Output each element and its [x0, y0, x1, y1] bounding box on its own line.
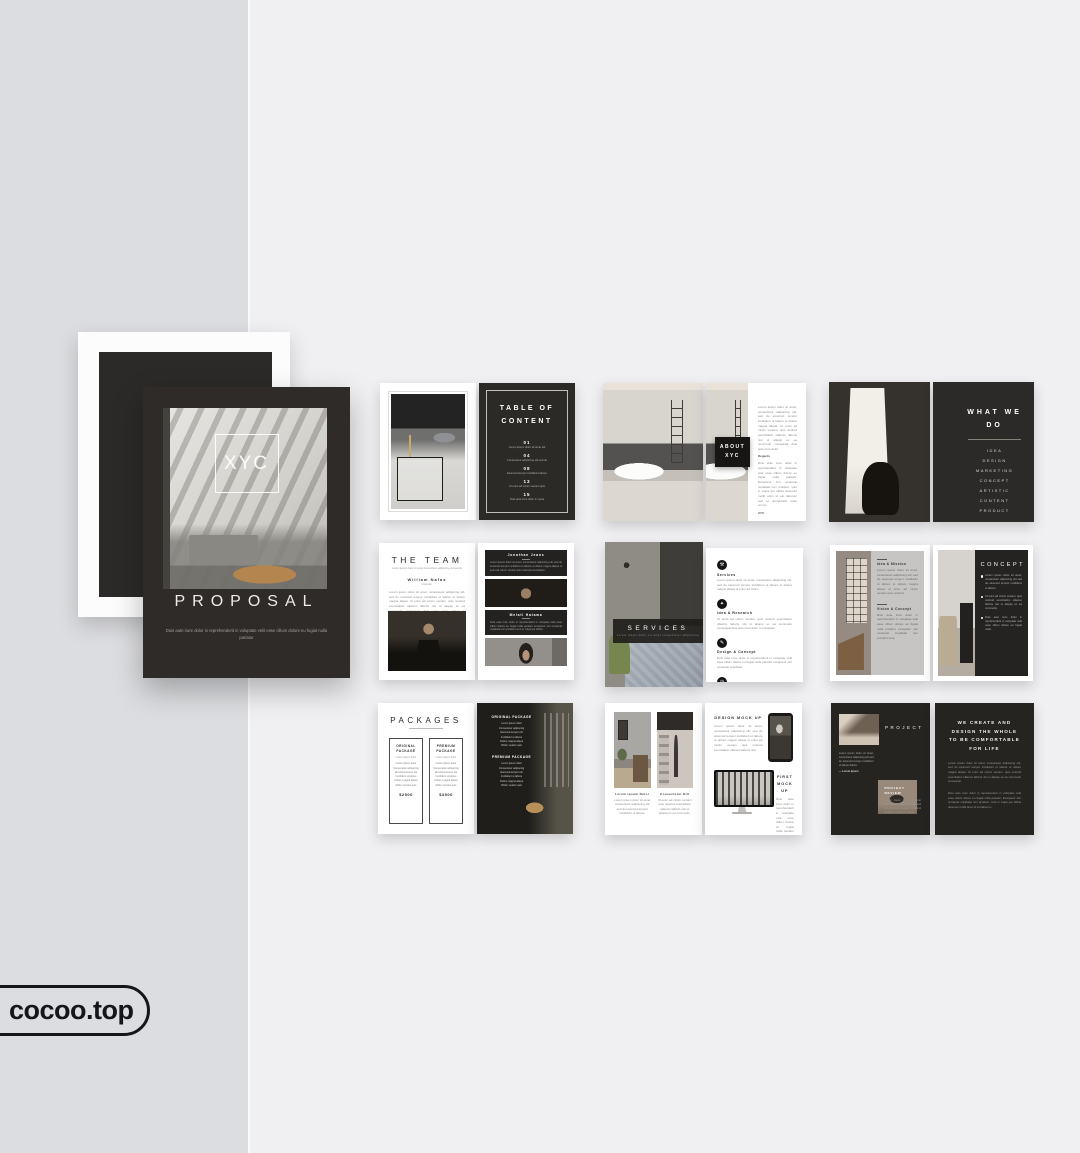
- service-label: Idea & Research: [717, 611, 792, 615]
- bedroom-photo: [605, 542, 703, 687]
- services-title: SERVICES: [628, 625, 689, 632]
- cocoo-watermark: cocoo.top: [0, 985, 150, 1036]
- closing-paragraph: Duis aute irure dolor in reprehenderit i…: [948, 791, 1021, 809]
- design-mockup-title: DESIGN MOCK UP: [714, 715, 762, 722]
- design-mockup-paragraph: Lorem ipsum dolor sit amet, consectetur …: [714, 724, 762, 752]
- street-window-photo: [657, 712, 694, 788]
- package-features: Lorem ipsum dolor Consectetur adipiscing…: [490, 722, 532, 748]
- team-subtitle: Lorem ipsum dolor sit amet consectetur a…: [379, 567, 475, 570]
- divider: [522, 618, 530, 619]
- spread-project: PROJECT Lorem ipsum dolor sit amet, cons…: [831, 703, 1034, 835]
- packages-dark-lists: ORIGINAL PACKAGE Lorem ipsum dolor Conse…: [490, 715, 532, 795]
- pencil-icon: ✎: [717, 638, 727, 648]
- toc-item: 13Ut enim ad minim veniam quis: [492, 479, 561, 488]
- concept-left-layout: Idea & Mission Lorem ipsum dolor sit ame…: [836, 551, 924, 675]
- member-card: Jonathan Jeans Lorem ipsum dolor sit ame…: [485, 550, 567, 576]
- spread-about: ABOUT XYC Lorem ipsum dolor sit amet, co…: [603, 383, 806, 521]
- section-text: Duis aute irure dolor in reprehenderit i…: [877, 613, 918, 641]
- project-quote: Lorem ipsum dolor sit amet, consectetur …: [839, 752, 874, 769]
- services-banner: SERVICES Lorem ipsum dolor sit amet cons…: [613, 619, 703, 644]
- sidetable-photo: [391, 394, 465, 509]
- toc-page: TABLE OF CONTENT 01Lorem ipsum dolor sit…: [479, 383, 575, 520]
- template-showcase: XYC PROPOSAL Duis aute irure dolor in re…: [0, 0, 1080, 1153]
- about-label-box: ABOUT XYC: [715, 437, 750, 467]
- project-collage-page: PROJECT Lorem ipsum dolor sit amet, cons…: [831, 703, 930, 835]
- phone-mockup: [768, 713, 793, 762]
- spread-concept: Idea & Mission Lorem ipsum dolor sit ame…: [830, 545, 1033, 681]
- concept-bullet: Duis aute irure dolor in reprehenderit i…: [981, 616, 1022, 633]
- section-text: Lorem ipsum dolor sit amet, consectetur …: [877, 568, 918, 596]
- team-title: THE TEAM: [379, 555, 475, 565]
- section-title: Idea & Mission: [877, 562, 918, 566]
- package-name: PREMIUM PACKAGE: [433, 744, 459, 754]
- first-mockup-row: FIRST MOCK UP Duis aute irure dolor in r…: [714, 770, 793, 835]
- package-tagline: Lorem ipsum dolor: [433, 756, 459, 759]
- bedroom-detail-photo: [839, 714, 879, 746]
- accent-line: [877, 559, 887, 560]
- first-mockup-title: FIRST MOCK UP: [776, 774, 794, 794]
- service-label: Services: [717, 573, 792, 577]
- cover-subtitle: Duis aute irure dolor in reprehenderit i…: [162, 627, 332, 641]
- wwd-page: WHAT WE DO IDEA DESIGN MARKETING CONCEPT…: [933, 382, 1034, 522]
- framed-photo: [388, 391, 468, 512]
- wwd-title: WHAT WE DO: [963, 406, 1026, 433]
- wwd-item: CONTENT: [963, 496, 1026, 506]
- desktop-stand: [738, 807, 747, 812]
- concept-left-page: Idea & Mission Lorem ipsum dolor sit ame…: [830, 545, 930, 681]
- package-price: $2500: [393, 792, 419, 797]
- photo-pair: [614, 712, 693, 788]
- about-paragraph: Duis aute irure dolor in reprehenderit i…: [758, 461, 797, 507]
- project-quote-block: Lorem ipsum dolor sit amet, consectetur …: [839, 752, 874, 774]
- living-room-photo: [614, 712, 651, 788]
- package-name: ORIGINAL PACKAGE: [393, 744, 419, 754]
- first-mockup-paragraph: Duis aute irure dolor in reprehenderit i…: [776, 797, 794, 835]
- member-photo: [485, 638, 567, 666]
- toc-title: TABLE OF CONTENT: [493, 403, 560, 428]
- section-title: Vision & Concept: [877, 607, 918, 611]
- clock-icon: ◷: [717, 677, 727, 682]
- desktop-base: [732, 812, 752, 814]
- spread-team: THE TEAM Lorem ipsum dolor sit amet cons…: [379, 543, 574, 680]
- phone-screen-photo: [770, 716, 791, 759]
- services-list-page: ⚒ Services Lorem ipsum dolor sit amet, c…: [706, 548, 803, 682]
- package-features: Lorem ipsum dolor Consectetur adipiscing…: [490, 762, 532, 788]
- services-list: ⚒ Services Lorem ipsum dolor sit amet, c…: [717, 560, 792, 682]
- package-price: $3500: [433, 792, 459, 797]
- about-paragraph: Lorem ipsum dolor sit amet, consectetur …: [758, 405, 797, 451]
- service-item: ◷ Time Management Excepteur sint occaeca…: [717, 677, 792, 682]
- package-features: Lorem ipsum dolor Consectetur adipiscing…: [393, 762, 419, 788]
- window-light-photo: [829, 382, 930, 522]
- first-mockup-text: FIRST MOCK UP Duis aute irure dolor in r…: [776, 770, 794, 835]
- proposal-cover: XYC PROPOSAL Duis aute irure dolor in re…: [143, 387, 350, 678]
- design-mockup-text: DESIGN MOCK UP Lorem ipsum dolor sit ame…: [714, 711, 762, 752]
- wwd-item: DESIGN: [963, 456, 1026, 466]
- desk-window-photo: [836, 551, 871, 675]
- toc-item: 01Lorem ipsum dolor sit amet elit: [492, 440, 561, 449]
- member-card: Melati Hatawa Duis aute irure dolor in r…: [485, 610, 567, 636]
- about-text-page: ABOUT XYC Lorem ipsum dolor sit amet, co…: [706, 383, 806, 521]
- service-text: Lorem ipsum dolor sit amet, consectetur …: [717, 578, 792, 592]
- member-role: Founder: [379, 583, 475, 586]
- member-name: Jonathan Jeans: [490, 553, 562, 557]
- bullet-dot: [981, 596, 984, 599]
- about-signature: XYC: [758, 511, 797, 515]
- services-subtitle: Lorem ipsum dolor sit amet consectetur a…: [617, 634, 699, 637]
- spread-packages: PACKAGES ORIGINAL PACKAGE Lorem ipsum do…: [378, 703, 573, 834]
- closing-paragraph: Lorem ipsum dolor sit amet, consectetur …: [948, 761, 1021, 784]
- member-bio: Lorem ipsum dolor sit amet, consectetur …: [490, 561, 562, 573]
- about-text: Lorem ipsum dolor sit amet, consectetur …: [758, 405, 797, 518]
- spread-table-of-content: TABLE OF CONTENT 01Lorem ipsum dolor sit…: [380, 383, 575, 520]
- member-photo: [388, 611, 466, 671]
- service-text: Duis aute irure dolor in reprehenderit i…: [717, 656, 792, 670]
- service-item: ⚒ Services Lorem ipsum dolor sit amet, c…: [717, 560, 792, 592]
- package-features: Lorem ipsum dolor Consectetur adipiscing…: [433, 762, 459, 788]
- toc-item: 15Duis aute irure dolor in venia: [492, 492, 561, 501]
- bathroom-photo: [603, 383, 703, 521]
- package-tagline: Lorem ipsum dolor: [393, 756, 419, 759]
- closing-headline: WE CREATE AND DESIGN THE WHOLE TO BE COM…: [949, 719, 1020, 754]
- concept-dark-panel: CONCEPT Lorem ipsum dolor sit amet, cons…: [975, 550, 1028, 676]
- wwd-content: WHAT WE DO IDEA DESIGN MARKETING CONCEPT…: [963, 406, 1026, 522]
- wwd-item: IDEA: [963, 446, 1026, 456]
- about-photo-page: [603, 383, 703, 521]
- toc-photo-page: [380, 383, 476, 520]
- toc-item: 08Eiusmod tempor incididunt labore: [492, 466, 561, 475]
- about-label: ABOUT XYC: [715, 443, 750, 461]
- brand-logo: XYC: [224, 453, 269, 475]
- concept-bullet: Lorem ipsum dolor sit amet, consectetur …: [981, 574, 1022, 591]
- divider: [968, 439, 1021, 440]
- packages-left-page: PACKAGES ORIGINAL PACKAGE Lorem ipsum do…: [378, 703, 474, 834]
- service-item: ✎ Design & Concept Duis aute irure dolor…: [717, 638, 792, 670]
- concept-bullet: Ut enim ad minim veniam, quis nostrud ex…: [981, 595, 1022, 612]
- member-name: William Nafas: [379, 577, 475, 582]
- package-name: PREMIUM PACKAGE: [490, 755, 532, 760]
- spread-services: SERVICES Lorem ipsum dolor sit amet cons…: [605, 542, 803, 687]
- service-label: Design & Concept: [717, 650, 792, 654]
- packages-right-page: ORIGINAL PACKAGE Lorem ipsum dolor Conse…: [477, 703, 573, 834]
- photo-caption: Lorem Ipsum Dolor Lorem ipsum dolor sit …: [614, 792, 651, 816]
- concept-right-page: CONCEPT Lorem ipsum dolor sit amet, cons…: [933, 545, 1033, 681]
- mockups-right-page: DESIGN MOCK UP Lorem ipsum dolor sit ame…: [705, 703, 802, 835]
- divider: [409, 728, 443, 729]
- member-bio: Duis aute irure dolor in reprehenderit i…: [490, 621, 562, 633]
- bullet-dot: [981, 575, 984, 578]
- closing-page: WE CREATE AND DESIGN THE WHOLE TO BE COM…: [935, 703, 1034, 835]
- package-name: ORIGINAL PACKAGE: [490, 715, 532, 720]
- wwd-item: ARTISTIC: [963, 486, 1026, 496]
- service-item: ✦ Idea & Research Ut enim ad minim venia…: [717, 599, 792, 631]
- services-photo-page: SERVICES Lorem ipsum dolor sit amet cons…: [605, 542, 703, 687]
- bullet-dot: [981, 617, 984, 620]
- desktop-mockup: [714, 770, 770, 814]
- concept-title: CONCEPT: [981, 562, 1022, 568]
- lightbulb-icon: ✦: [717, 599, 727, 609]
- divider: [522, 559, 530, 560]
- team-left-page: THE TEAM Lorem ipsum dolor sit amet cons…: [379, 543, 475, 680]
- wwd-item: MARKETING: [963, 466, 1026, 476]
- service-text: Ut enim ad minim veniam, quis nostrud ex…: [717, 617, 792, 631]
- photo-caption: Consectetur Elit Ut enim ad minim veniam…: [657, 792, 694, 816]
- project-review-block: PROJECT REVIEW Lorem ipsum dolor sit ame…: [884, 786, 921, 815]
- mockups-left-page: Lorem Ipsum Dolor Lorem ipsum dolor sit …: [605, 703, 702, 835]
- brand-logo-frame: XYC: [215, 434, 279, 493]
- team-right-page: Jonathan Jeans Lorem ipsum dolor sit ame…: [478, 543, 574, 680]
- spread-mockups: Lorem Ipsum Dolor Lorem ipsum dolor sit …: [605, 703, 802, 835]
- design-mockup-row: DESIGN MOCK UP Lorem ipsum dolor sit ame…: [714, 711, 793, 762]
- caption-pair: Lorem Ipsum Dolor Lorem ipsum dolor sit …: [614, 792, 693, 816]
- member-photo: [485, 579, 567, 607]
- wwd-item: CONCEPT: [963, 476, 1026, 486]
- member-name: Melati Hatawa: [490, 613, 562, 617]
- toc-item: 04Consectetur adipiscing elit sed do: [492, 453, 561, 462]
- tools-icon: ⚒: [717, 560, 727, 570]
- team-stack: Jonathan Jeans Lorem ipsum dolor sit ame…: [485, 550, 567, 673]
- cover-title: PROPOSAL: [143, 593, 350, 611]
- wwd-item: PRODUCT: [963, 506, 1026, 516]
- watermark-label: cocoo.top: [0, 995, 134, 1026]
- wwd-photo-page: [829, 382, 930, 522]
- concept-right-layout: CONCEPT Lorem ipsum dolor sit amet, cons…: [938, 550, 1028, 676]
- package-card: PREMIUM PACKAGE Lorem ipsum dolor Lorem …: [429, 738, 463, 824]
- accent-line: [877, 604, 887, 605]
- desktop-screen: [714, 770, 774, 807]
- about-signature: Regards: [758, 454, 797, 458]
- desktop-screen-photo: [716, 772, 772, 805]
- spread-what-we-do: WHAT WE DO IDEA DESIGN MARKETING CONCEPT…: [829, 382, 1034, 522]
- project-review-text: Lorem ipsum dolor sit amet consectetur a…: [884, 799, 921, 816]
- concept-gray-panel: Idea & Mission Lorem ipsum dolor sit ame…: [871, 551, 924, 675]
- sofa-room-photo: [938, 550, 975, 676]
- packages-boxes: ORIGINAL PACKAGE Lorem ipsum dolor Lorem…: [389, 738, 463, 824]
- project-label: PROJECT: [884, 725, 924, 730]
- toc-items: 01Lorem ipsum dolor sit amet elit 04Cons…: [492, 440, 561, 505]
- packages-title: PACKAGES: [378, 716, 474, 725]
- project-review-title: PROJECT REVIEW: [884, 786, 921, 797]
- quote-signature: — Lorem Ipsum: [839, 770, 874, 773]
- package-card: ORIGINAL PACKAGE Lorem ipsum dolor Lorem…: [389, 738, 423, 824]
